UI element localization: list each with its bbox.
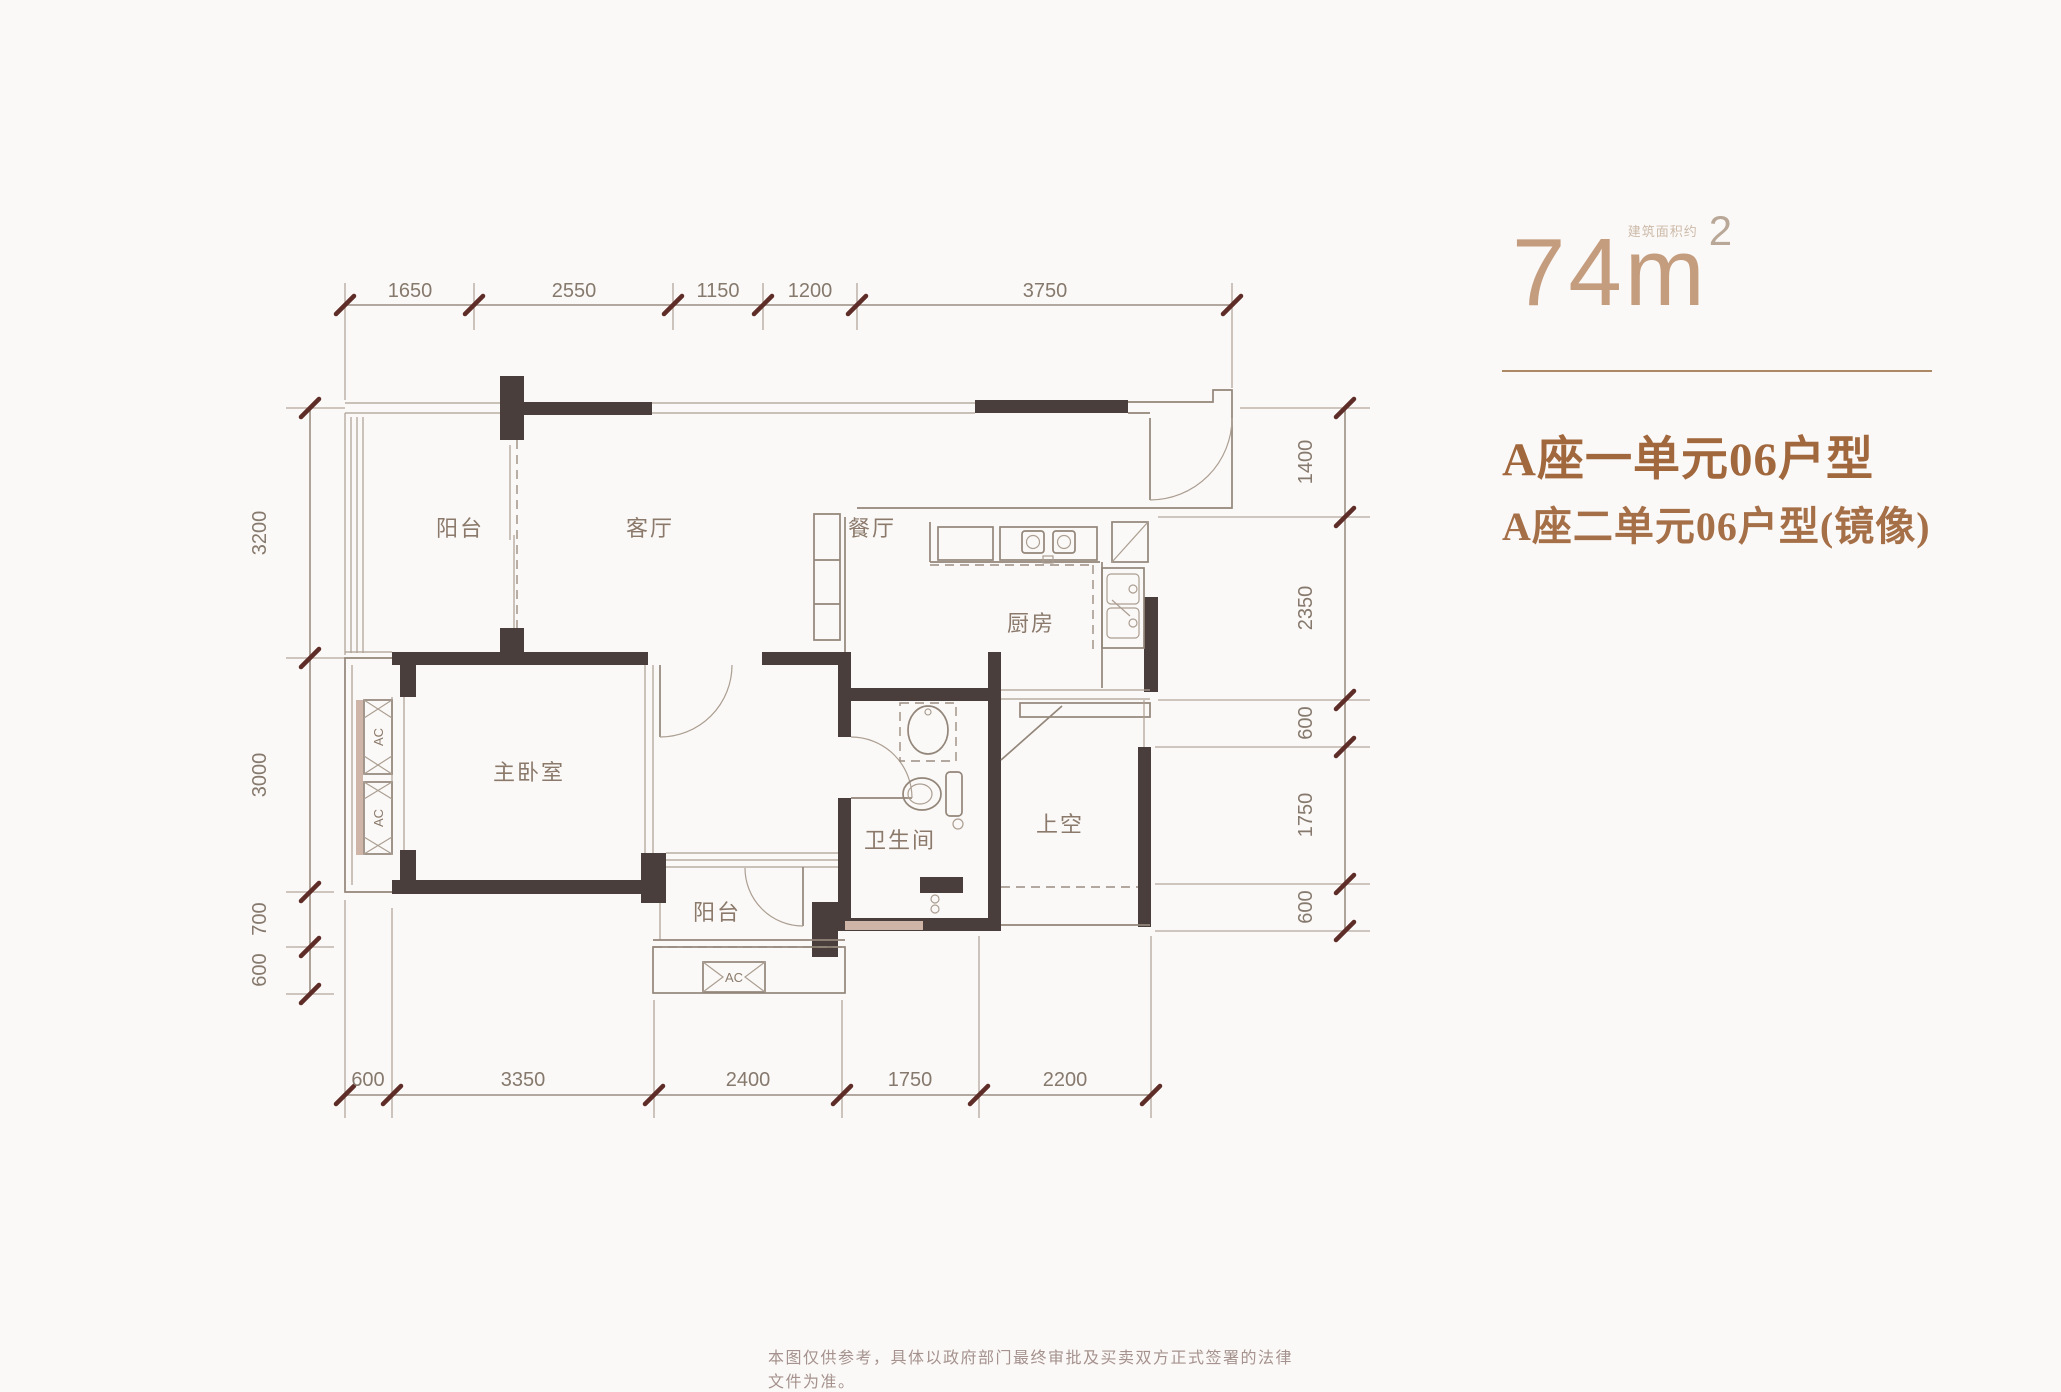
- room-label-void: 上空: [1036, 812, 1084, 837]
- balcony-door: [745, 867, 803, 926]
- dim-left-2: 700: [249, 902, 271, 935]
- windows-and-outlines: [345, 390, 1232, 993]
- title-divider-line: [1502, 370, 1932, 372]
- dim-left-1: 3000: [249, 753, 271, 798]
- disclaimer-text: 本图仅供参考，具体以政府部门最终审批及买卖双方正式签署的法律文件为准。: [768, 1344, 1308, 1392]
- ac-unit-left-1: AC: [364, 700, 392, 774]
- area-unit: m: [1625, 234, 1705, 313]
- dim-top-0: 1650: [388, 280, 433, 302]
- dimension-line-right: 1400 2350 600 1750 600: [1155, 399, 1370, 940]
- pink-trim: [356, 700, 923, 930]
- entry-door: [1150, 418, 1232, 500]
- floor-drain-icons: [931, 895, 939, 913]
- stove-icon: [1000, 527, 1097, 563]
- dim-bottom-0: 600: [351, 1069, 384, 1091]
- dim-right-3: 1750: [1295, 793, 1317, 838]
- dimension-line-bottom: 600 3350 2400 1750 2200: [336, 900, 1160, 1118]
- unit-title-line2: A座二单元06户型(镜像): [1502, 494, 1931, 552]
- dim-bottom-3: 1750: [888, 1069, 933, 1091]
- ac-unit-bottom: AC: [703, 962, 765, 992]
- dim-bottom-1: 3350: [501, 1069, 546, 1091]
- walls: [392, 376, 1158, 957]
- ac-label-1: AC: [371, 728, 386, 746]
- bathroom-door: [851, 737, 912, 798]
- dim-top-4: 3750: [1023, 280, 1068, 302]
- room-label-balcony-top: 阳台: [436, 516, 484, 541]
- unit-title-line1: A座一单元06户型: [1502, 420, 1874, 489]
- dim-top-2: 1150: [696, 280, 739, 302]
- room-label-master-bedroom: 主卧室: [493, 760, 565, 785]
- dim-left-3: 600: [249, 953, 271, 986]
- dim-bottom-4: 2200: [1043, 1069, 1088, 1091]
- area-superscript: 2: [1709, 207, 1732, 255]
- dim-right-0: 1400: [1295, 440, 1317, 485]
- toilet-icon: [903, 772, 963, 829]
- room-label-kitchen: 厨房: [1007, 611, 1055, 636]
- ac-label-2: AC: [371, 809, 386, 827]
- ac-label-3: AC: [725, 970, 743, 985]
- room-label-living: 客厅: [626, 516, 674, 541]
- kitchen-counter: [930, 522, 1148, 688]
- dim-right-1: 2350: [1295, 586, 1317, 631]
- ac-unit-left-2: AC: [364, 782, 392, 854]
- room-label-bathroom: 卫生间: [864, 828, 936, 853]
- room-label-balcony-bottom: 阳台: [693, 900, 741, 925]
- bedroom-door: [660, 665, 732, 737]
- dimension-line-left: 3200 3000 700 600: [249, 399, 345, 1003]
- floorplan-drawing: 1650 2550 1150 1200 3750 600 3350 2400 1…: [0, 0, 2061, 1382]
- dim-top-1: 2550: [552, 280, 597, 302]
- dim-bottom-2: 2400: [726, 1069, 771, 1091]
- dimension-line-top: 1650 2550 1150 1200 3750: [336, 280, 1241, 400]
- area-title: 74 建筑面积约 m 2: [1512, 234, 1732, 313]
- bathroom-basin-icon: [900, 703, 956, 761]
- area-note-label: 建筑面积约: [1628, 221, 1698, 240]
- dim-left-0: 3200: [249, 511, 271, 556]
- dim-right-2: 600: [1295, 706, 1317, 739]
- dim-top-3: 1200: [788, 280, 833, 302]
- room-label-dining: 餐厅: [848, 516, 896, 541]
- room-labels: 阳台 客厅 餐厅 厨房 主卧室 卫生间 上空 阳台: [436, 516, 1084, 925]
- dim-right-4: 600: [1295, 890, 1317, 923]
- area-value: 74: [1512, 234, 1625, 313]
- kitchen-sink-icon: [1102, 568, 1144, 648]
